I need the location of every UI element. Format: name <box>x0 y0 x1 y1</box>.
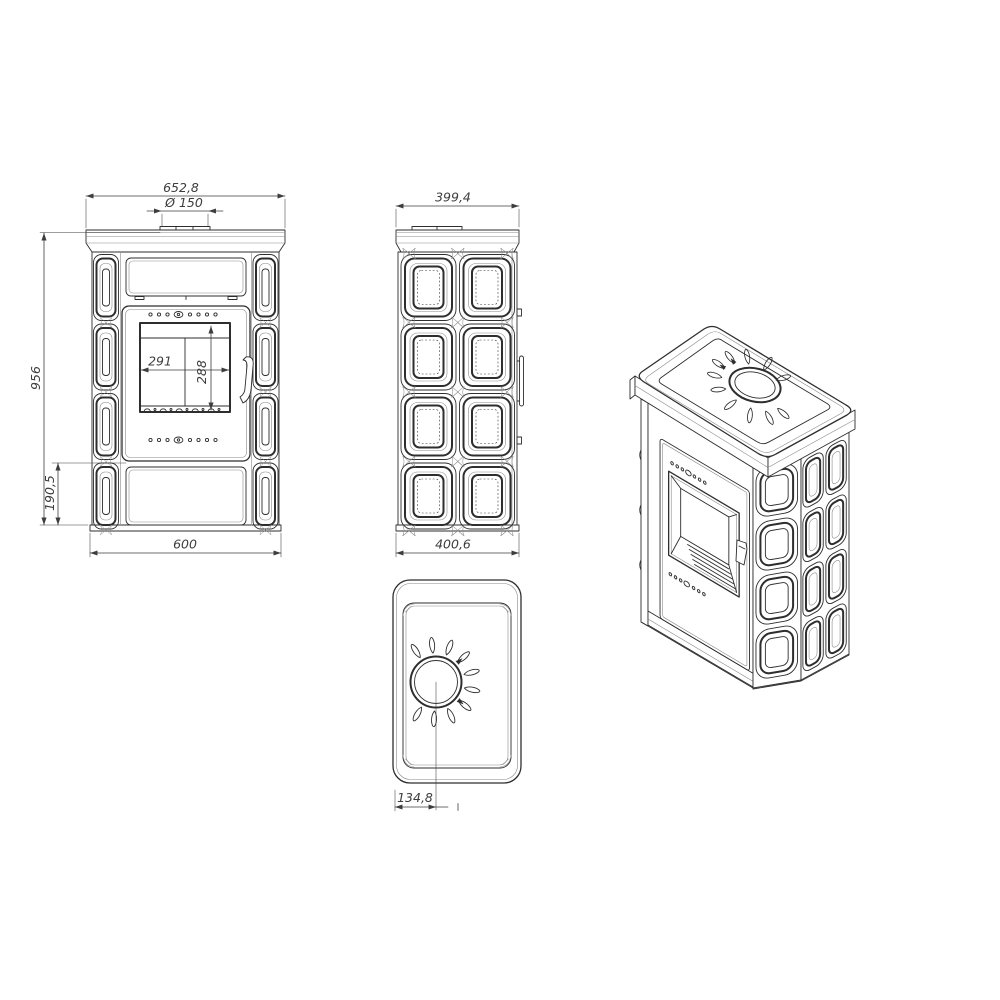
dim-label-134-8: 134,8 <box>397 790 433 805</box>
dim-label-399-4: 399,4 <box>435 190 471 205</box>
side-body <box>398 252 517 525</box>
dim-label-600: 600 <box>173 537 197 552</box>
iso-left-edge <box>640 399 648 626</box>
front-base <box>90 525 281 531</box>
top-plate-outline <box>393 580 521 783</box>
front-view: 652,8 Ø 150 956 190,5 291 288 600 <box>28 180 285 557</box>
dim-label-400-6: 400,6 <box>435 537 471 552</box>
dim-label-190-5: 190,5 <box>42 475 57 511</box>
dim-front-width-bottom: 600 <box>90 533 281 557</box>
iso-side-face <box>801 431 849 681</box>
dim-side-depth-top: 399,4 <box>396 190 519 228</box>
front-top-panel <box>126 258 246 300</box>
front-fire-door <box>122 306 253 461</box>
front-cornice <box>86 227 285 253</box>
isometric-view <box>630 327 855 690</box>
side-tile-joints <box>403 248 514 536</box>
dim-label-flue: Ø 150 <box>164 195 203 210</box>
dim-flue-diameter: Ø 150 <box>147 195 223 226</box>
dim-label-288: 288 <box>194 360 209 384</box>
dim-label-956: 956 <box>28 366 43 390</box>
front-ash-panel <box>126 467 246 525</box>
technical-drawing-page: 652,8 Ø 150 956 190,5 291 288 600 <box>0 0 1000 1000</box>
stove-technical-drawing: 652,8 Ø 150 956 190,5 291 288 600 <box>0 0 1000 1000</box>
dim-side-depth-bottom: 400,6 <box>396 533 519 557</box>
side-view: 399,4 400,6 <box>396 190 524 558</box>
top-view: 134,8 <box>393 580 521 811</box>
iso-corner-column <box>753 457 801 689</box>
dim-label-652-8: 652,8 <box>163 180 199 195</box>
dim-ash-height: 190,5 <box>42 463 126 525</box>
dim-label-291: 291 <box>148 354 172 369</box>
side-door-handle[interactable] <box>517 356 524 406</box>
